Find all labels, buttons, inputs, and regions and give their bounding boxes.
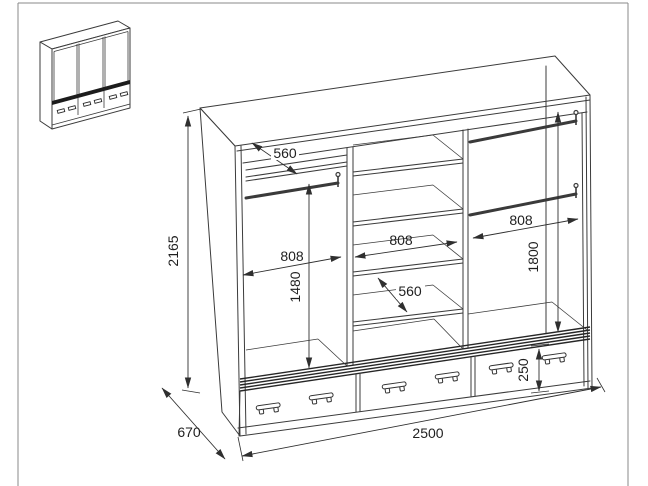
front-view-thumbnail — [40, 21, 130, 129]
dim-middle-shelf-depth: 560 — [378, 278, 425, 312]
dim-right-hanging-height-label: 1800 — [525, 241, 541, 272]
bottom-shelf-band — [240, 327, 590, 391]
drawer-handle-icon — [489, 363, 514, 375]
left-section — [246, 155, 347, 198]
dim-total-width: 2500 — [238, 378, 605, 461]
dim-left-section-width: 808 — [243, 248, 341, 275]
dim-depth: 670 — [162, 388, 225, 459]
dim-middle-shelf-depth-label: 560 — [398, 283, 422, 299]
left-side-panel — [200, 108, 240, 436]
dim-total-height-label: 2165 — [165, 235, 181, 266]
dim-left-shelf-depth-label: 560 — [273, 145, 297, 161]
dim-left-shelf-depth: 560 — [252, 143, 299, 174]
drawer-handle-icon — [309, 393, 334, 405]
drawing-canvas: 2165 670 2500 560 808 1480 808 — [0, 0, 648, 486]
drawer-handle-icon — [382, 382, 407, 394]
dim-middle-section-width-label: 808 — [389, 232, 413, 248]
dim-drawer-height-label: 250 — [515, 358, 531, 382]
right-section — [470, 111, 578, 216]
thumb-side-face — [40, 42, 52, 129]
dim-right-section-width-label: 808 — [509, 212, 533, 228]
top-panel — [200, 56, 590, 146]
dim-left-hanging-height: 1480 — [287, 184, 309, 368]
drawer-handle-icon — [542, 353, 567, 365]
left-hanging-rail — [246, 173, 340, 199]
dim-left-hanging-height-label: 1480 — [287, 271, 303, 302]
dim-total-width-label: 2500 — [412, 425, 443, 441]
dim-depth-label: 670 — [177, 424, 201, 440]
right-lower-hanging-rail — [470, 184, 578, 216]
dim-drawer-height: 250 — [515, 344, 549, 393]
drawer-handle-icon — [435, 372, 460, 384]
dim-total-height: 2165 — [165, 109, 201, 393]
dim-right-section-width: 808 — [473, 212, 578, 238]
dim-middle-section-width: 808 — [355, 232, 457, 257]
drawer-handle-icon — [256, 403, 281, 415]
wardrobe-technical-drawing-page: 2165 670 2500 560 808 1480 808 — [0, 0, 648, 486]
dim-left-section-width-label: 808 — [280, 248, 304, 264]
